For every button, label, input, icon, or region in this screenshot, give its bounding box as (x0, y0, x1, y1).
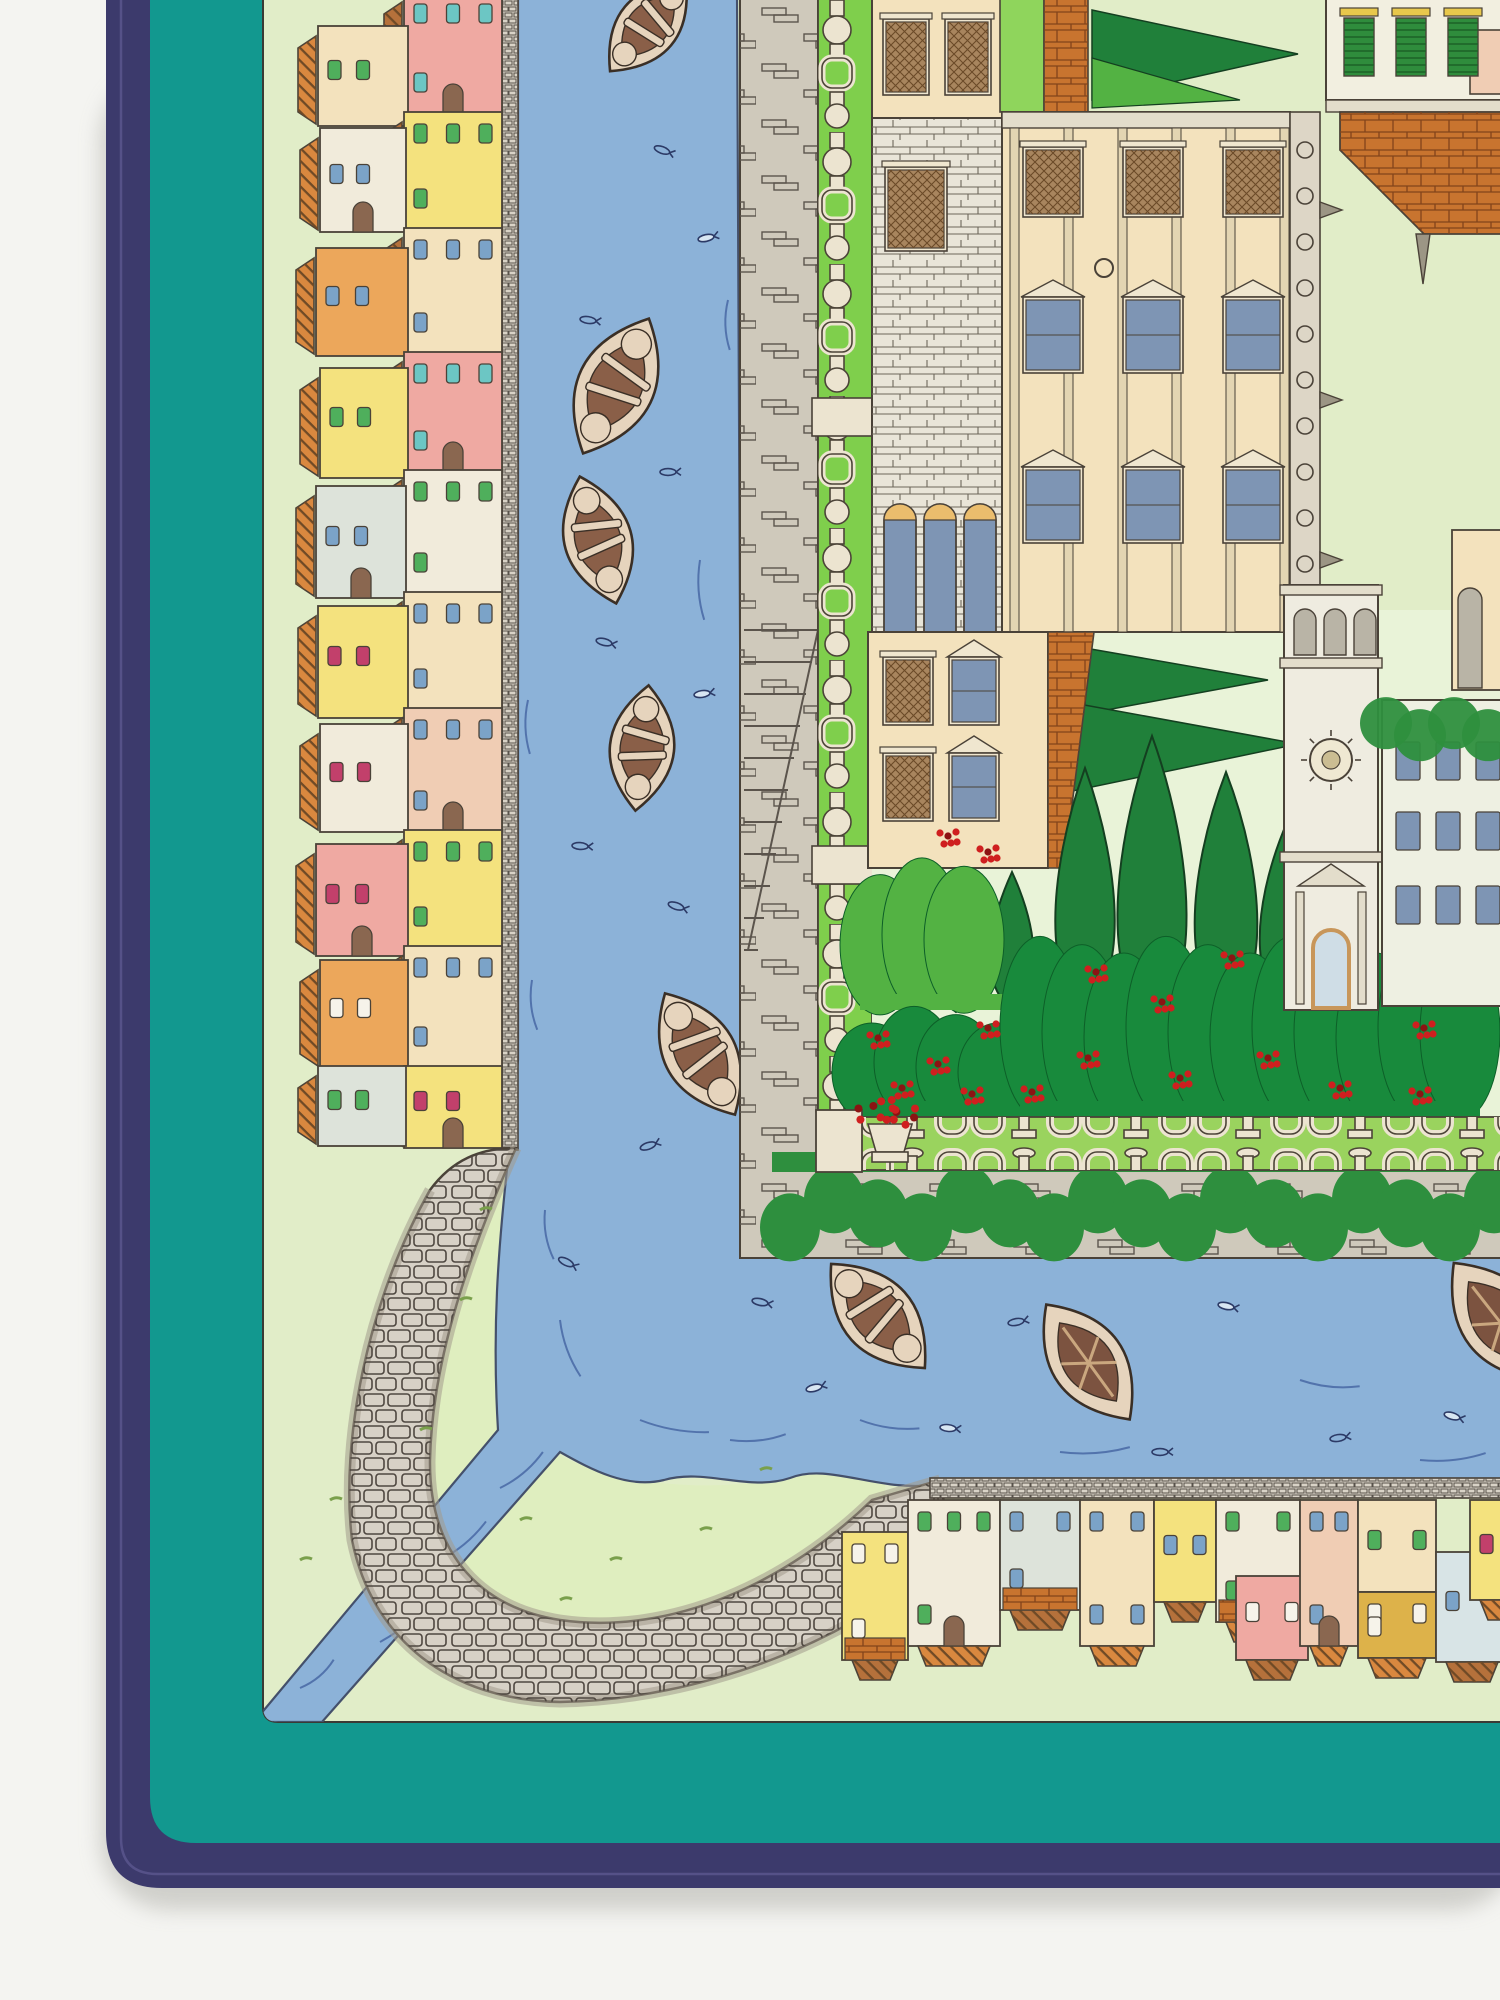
house-window (1285, 1603, 1298, 1622)
house-window (1131, 1512, 1144, 1531)
house-window (414, 669, 427, 688)
house-window (1057, 1512, 1070, 1531)
village-house (908, 1500, 1000, 1666)
house-window (447, 1092, 460, 1111)
house-window (1246, 1603, 1259, 1622)
house-window (355, 527, 368, 546)
house-window (414, 604, 427, 623)
house-door (944, 1616, 964, 1646)
village-house (1080, 1500, 1154, 1666)
house-window (918, 1512, 931, 1531)
house-window (1010, 1569, 1023, 1588)
house-window (1090, 1512, 1103, 1531)
house-window (479, 4, 492, 23)
house-window (414, 124, 427, 143)
house-window (1368, 1531, 1381, 1550)
house-window (447, 482, 460, 501)
house-window (1226, 1512, 1239, 1531)
house-window (977, 1512, 990, 1531)
house-door (443, 442, 463, 472)
house-window (414, 431, 427, 450)
house-window (414, 958, 427, 977)
palazzo-windows-right (1020, 141, 1286, 543)
house-window (1413, 1531, 1426, 1550)
house-window (948, 1512, 961, 1531)
house-window (414, 189, 427, 208)
house-window (357, 647, 370, 666)
house-window (414, 240, 427, 259)
house-window (852, 1619, 865, 1638)
house-window (328, 61, 341, 80)
house-window (326, 287, 339, 306)
house-window (447, 720, 460, 739)
house-window (447, 364, 460, 383)
house-window (328, 647, 341, 666)
house-window (1193, 1536, 1206, 1555)
house-window (447, 124, 460, 143)
village-house (300, 960, 408, 1068)
left-quay-strip (502, 0, 518, 1150)
house-window (479, 604, 492, 623)
house-window (447, 604, 460, 623)
belfry-arches (1294, 609, 1376, 655)
house-window (356, 885, 369, 904)
house-window (479, 958, 492, 977)
left-village (296, 0, 502, 1148)
green-shutter-windows (1340, 8, 1482, 76)
ivy-villa-windows (1396, 742, 1500, 924)
house-window (326, 527, 339, 546)
tower-door (1313, 930, 1349, 1008)
village-house (1300, 1500, 1358, 1666)
house-window (447, 842, 460, 861)
house-window (1335, 1512, 1348, 1531)
house-window (357, 165, 370, 184)
house-window (414, 313, 427, 332)
house-window (358, 999, 371, 1018)
house-window (447, 240, 460, 259)
house-window (414, 907, 427, 926)
house-window (447, 4, 460, 23)
house-window (414, 1092, 427, 1111)
house-window (1413, 1604, 1426, 1623)
house-window (1131, 1605, 1144, 1624)
house-door (351, 568, 371, 598)
house-window (479, 124, 492, 143)
house-door (1319, 1616, 1339, 1646)
house-window (414, 364, 427, 383)
house-window (1010, 1512, 1023, 1531)
house-window (330, 408, 343, 427)
house-window (414, 553, 427, 572)
house-window (414, 4, 427, 23)
house-window (356, 1091, 369, 1110)
village-house (296, 248, 408, 356)
house-window (852, 1544, 865, 1563)
house-window (330, 763, 343, 782)
house-window (414, 482, 427, 501)
bell-tower (1280, 585, 1382, 1010)
house-window (1277, 1512, 1290, 1531)
scarf-illustration-canvas (0, 0, 1500, 2000)
bottom-quay-strip (930, 1478, 1500, 1498)
house-window (357, 61, 370, 80)
house-window (1090, 1605, 1103, 1624)
house-window (1446, 1592, 1459, 1611)
house-window (330, 165, 343, 184)
house-door (353, 202, 373, 232)
house-window (479, 842, 492, 861)
village-house (296, 486, 406, 598)
house-window (414, 1027, 427, 1046)
village-house (296, 844, 408, 956)
house-door (352, 926, 372, 956)
village-house (1000, 1500, 1080, 1630)
scarf-product-photo (0, 0, 1500, 2000)
village-house (842, 1532, 908, 1680)
village-house (300, 368, 408, 478)
house-window (1310, 1512, 1323, 1531)
house-door (443, 84, 463, 114)
palazzo-arcade (884, 504, 996, 632)
house-window (358, 763, 371, 782)
garden-villa (868, 632, 1094, 868)
house-window (330, 999, 343, 1018)
house-window (1480, 1535, 1493, 1554)
village-house (298, 606, 408, 718)
house-body (1154, 1500, 1216, 1602)
village-house (298, 1066, 406, 1146)
house-window (479, 482, 492, 501)
house-door (443, 802, 463, 832)
house-door (443, 1118, 463, 1148)
house-window (447, 958, 460, 977)
house-window (414, 73, 427, 92)
house-window (328, 1091, 341, 1110)
house-window (356, 287, 369, 306)
house-window (479, 364, 492, 383)
house-window (918, 1605, 931, 1624)
house-window (885, 1544, 898, 1563)
house-window (326, 885, 339, 904)
house-window (414, 791, 427, 810)
house-window (1164, 1536, 1177, 1555)
village-house (300, 128, 406, 232)
house-window (414, 720, 427, 739)
house-window (414, 842, 427, 861)
village-house (298, 26, 408, 126)
village-house (300, 724, 408, 832)
house-window (358, 408, 371, 427)
house-window (1368, 1617, 1381, 1636)
house-window (479, 240, 492, 259)
house-window (479, 720, 492, 739)
